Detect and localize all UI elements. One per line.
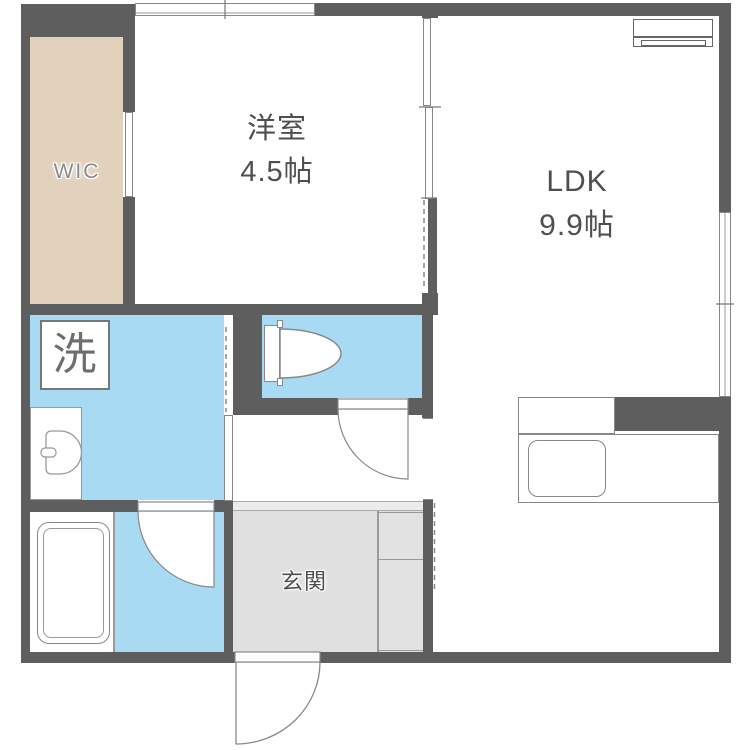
laundry-label: 洗 [53,326,98,384]
kitchen-sink-icon [528,440,606,497]
floor-plan: 洗 WIC [0,0,750,750]
entrance-door-swing [236,662,320,744]
washroom-door [224,415,233,501]
ldk-label: LDK 9.9帖 [477,162,677,245]
genkan-step [233,501,425,511]
toilet-tank-notch-top [277,320,283,328]
sliding-door-leaf-b [425,107,433,199]
window-top [135,3,315,16]
kitchen-stove [518,397,615,434]
toilet-tank-notch-bottom [277,378,283,386]
toilet-tank [264,325,280,382]
hallway-ldk-opening [423,418,433,500]
entrance-door-leaf [235,652,320,662]
bathroom-door-leaf [138,502,214,511]
western-room-label: 洋室 4.5帖 [177,110,377,192]
washbasin-counter [30,407,82,500]
window-right [719,212,731,397]
room-hallway-floor [233,415,423,500]
toilet-door-leaf [338,399,408,409]
air-conditioner-line [633,36,713,38]
genkan-label: 玄関 [234,567,374,596]
room-toilet-floor [262,315,422,398]
sliding-door-leaf-a [423,18,431,106]
shoe-cabinet-upper [378,512,424,560]
bathtub-inner [43,528,104,638]
room-bath-wash-floor [115,512,224,652]
air-conditioner-vent [641,40,706,46]
bath-floor-divider [113,512,115,652]
washing-machine-icon: 洗 [40,320,110,390]
wic-label: WIC [27,158,127,186]
shoe-cabinet-lower [378,559,424,651]
